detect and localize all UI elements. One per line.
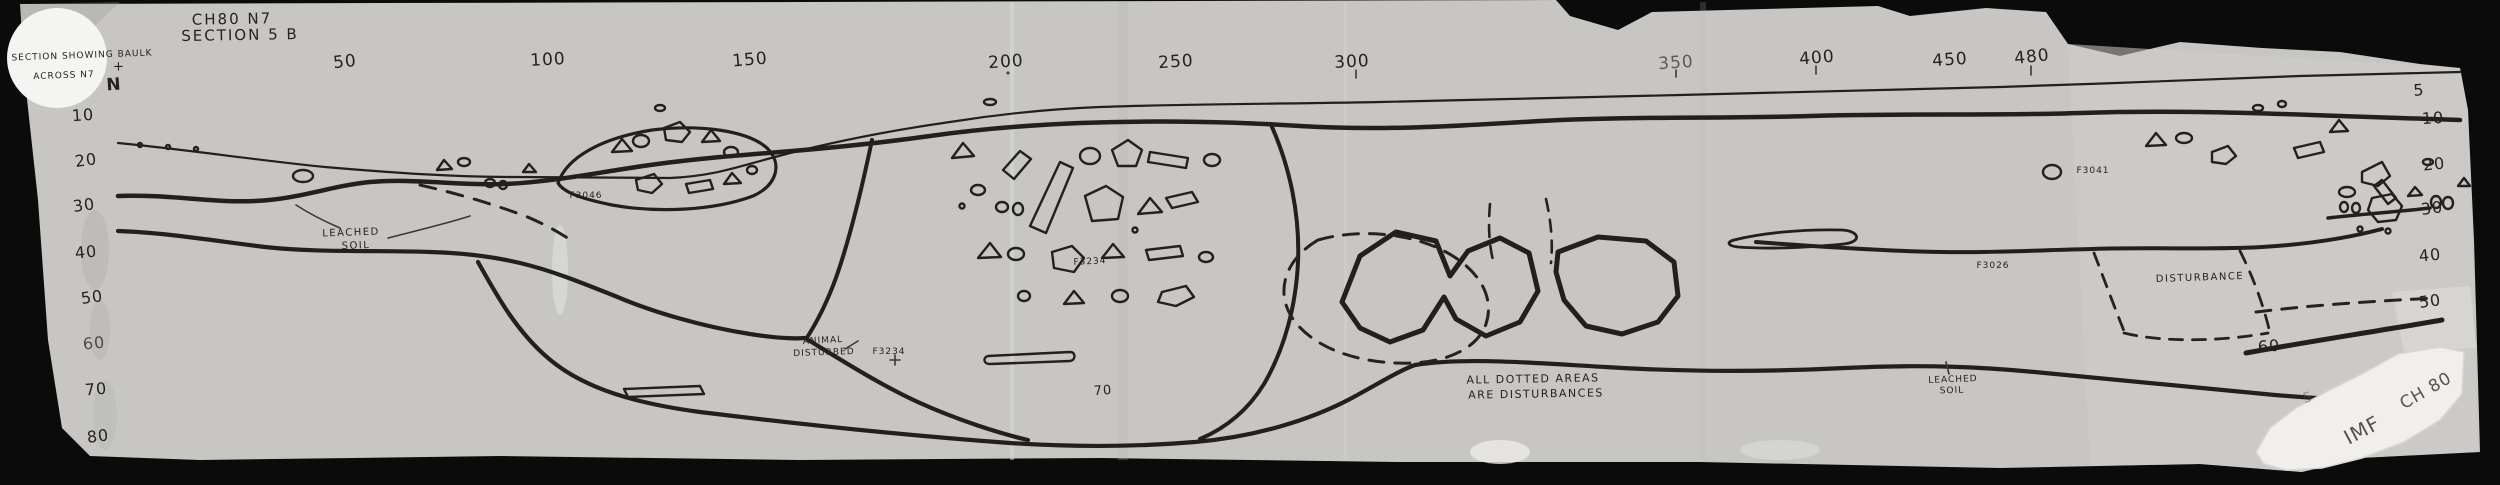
right-scale-30: 30	[2420, 197, 2445, 219]
top-scale-250: 250	[1158, 51, 1195, 73]
left-scale-80: 80	[86, 425, 111, 447]
left-scale-60: 60	[82, 332, 106, 353]
left-scale-10: 10	[71, 105, 95, 126]
left-scale-30: 30	[72, 194, 97, 216]
top-scale-350: 350	[1658, 52, 1695, 74]
annotation-leached-soil-right-line1: LEACHED	[1928, 374, 1978, 386]
top-scale-450: 450	[1932, 49, 1969, 71]
top-scale-480: 480	[2013, 45, 2050, 69]
top-scale-50: 50	[332, 51, 358, 73]
annotation-f3026: F3026	[1976, 261, 2009, 271]
section-drawing-scan: CH80 N7 SECTION 5 B SECTION SHOWING BAUL…	[0, 0, 2500, 485]
left-scale-40: 40	[74, 241, 98, 262]
right-scale-10: 10	[2421, 108, 2444, 128]
annotation-f3234-b: F3234	[1073, 256, 1107, 268]
right-scale-50: 50	[2418, 290, 2443, 312]
scan-canvas	[0, 0, 2500, 485]
top-scale-300: 300	[1334, 51, 1370, 73]
north-letter: N	[106, 74, 123, 95]
annotation-animal-line2: DISTURBED	[793, 347, 855, 359]
annotation-leached-soil-left-line1: LEACHED	[322, 226, 380, 239]
left-scale-70: 70	[84, 379, 108, 400]
annotation-f3041: F3041	[2076, 166, 2109, 176]
right-scale-20: 20	[2422, 153, 2446, 174]
section-label: SECTION 5 B	[181, 25, 299, 45]
caption-line-2: ACROSS N7	[33, 70, 95, 82]
annotation-leached-soil-left-line2: SOIL	[341, 240, 370, 252]
right-scale-40: 40	[2418, 244, 2442, 265]
left-scale-20: 20	[74, 149, 99, 171]
annotation-leached-soil-right-line2: SOIL	[1940, 386, 1965, 397]
annotation-dotted-note-line1: ALL DOTTED AREAS	[1466, 371, 1599, 386]
top-scale-200: 200	[988, 51, 1025, 73]
annotation-dotted-note-line2: ARE DISTURBANCES	[1468, 386, 1604, 401]
top-scale-100: 100	[530, 49, 566, 71]
annotation-f3046: F3046	[569, 191, 602, 201]
north-arrow-icon: +	[113, 60, 125, 75]
right-scale-5: 5	[2413, 80, 2425, 100]
annotation-f3234-a: F3234	[872, 347, 905, 357]
left-scale-50: 50	[80, 286, 105, 308]
annotation-animal-line1: ANIMAL	[803, 335, 844, 347]
top-scale-150: 150	[731, 48, 768, 71]
right-scale-60: 60	[2257, 336, 2281, 357]
top-scale-400: 400	[1798, 46, 1835, 69]
annotation-depth-70: 70	[1093, 383, 1113, 399]
